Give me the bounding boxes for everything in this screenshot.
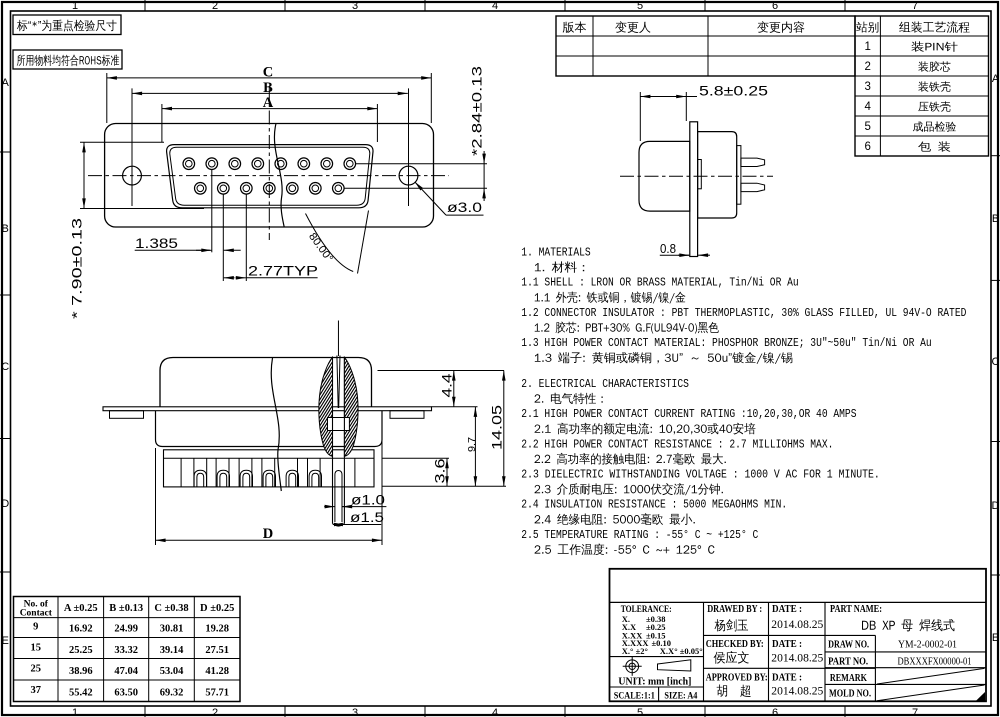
svg-text:DRAW NO.: DRAW NO.	[828, 639, 869, 650]
svg-text:C: C	[992, 356, 1000, 368]
svg-text:25.25: 25.25	[69, 645, 93, 656]
svg-text:D: D	[1, 498, 9, 510]
svg-text:DBXXXFX00000-01: DBXXXFX00000-01	[898, 655, 972, 667]
svg-text:5: 5	[637, 0, 643, 12]
svg-text:YM-2-0002-01: YM-2-0002-01	[898, 638, 957, 650]
svg-text:19.28: 19.28	[205, 624, 229, 635]
svg-text:63.50: 63.50	[114, 688, 138, 699]
svg-text:2: 2	[212, 0, 218, 12]
svg-text:* 7.90±0.13: * 7.90±0.13	[70, 218, 85, 319]
svg-text:24.99: 24.99	[114, 624, 138, 635]
svg-text:47.04: 47.04	[114, 666, 138, 677]
svg-text:D: D	[263, 526, 273, 542]
svg-text:5: 5	[637, 707, 643, 717]
svg-text:E: E	[2, 635, 9, 647]
svg-text:2.4 INSULATION RESISTANCE : 50: 2.4 INSULATION RESISTANCE : 5000 MEGAOHM…	[521, 498, 787, 512]
svg-text:6: 6	[772, 0, 778, 12]
svg-text:25: 25	[31, 664, 42, 675]
svg-text:X.X° ±0.05°: X.X° ±0.05°	[660, 646, 703, 656]
svg-text:15: 15	[31, 643, 42, 654]
svg-text:C: C	[263, 64, 273, 80]
svg-text:MOLD NO.: MOLD NO.	[829, 688, 871, 699]
svg-text:1.1 SHELL : LRON OR BRASS MATE: 1.1 SHELL : LRON OR BRASS MATERIAL, Tin/…	[521, 276, 798, 290]
svg-text:0.8: 0.8	[660, 241, 676, 256]
svg-text:30.81: 30.81	[160, 624, 184, 635]
svg-text:CHECKED BY:: CHECKED BY:	[706, 639, 764, 650]
svg-text:SCALE:1:1: SCALE:1:1	[614, 691, 655, 701]
svg-text:1. MATERIALS: 1. MATERIALS	[521, 246, 590, 260]
svg-text:B: B	[263, 80, 273, 96]
svg-text:UNIT: mm [inch]: UNIT: mm [inch]	[618, 676, 691, 687]
svg-text:DATE :: DATE :	[772, 604, 802, 615]
svg-text:C: C	[1, 361, 9, 373]
svg-text:B: B	[2, 223, 9, 235]
svg-text:C ±0.38: C ±0.38	[154, 603, 188, 614]
svg-text:69.32: 69.32	[160, 688, 184, 699]
svg-text:9.7: 9.7	[466, 437, 478, 452]
svg-text:DATE :: DATE :	[772, 672, 802, 683]
svg-text:1.385: 1.385	[135, 236, 178, 251]
svg-text:27.51: 27.51	[205, 645, 229, 656]
svg-text:D ±0.25: D ±0.25	[200, 603, 234, 614]
svg-text:53.04: 53.04	[160, 666, 184, 677]
svg-text:2.3 DIELECTRIC WITHSTANDING VO: 2.3 DIELECTRIC WITHSTANDING VOLTAGE : 10…	[521, 468, 879, 482]
svg-text:41.28: 41.28	[205, 666, 229, 677]
svg-text:1.3 HIGH POWER CONTACT MATERIA: 1.3 HIGH POWER CONTACT MATERIAL: PHOSPHO…	[521, 336, 931, 350]
svg-text:3.6: 3.6	[433, 459, 448, 484]
svg-text:2014.08.25: 2014.08.25	[771, 617, 823, 631]
svg-text:2.77TYP: 2.77TYP	[248, 263, 318, 278]
svg-text:*2.84±0.13: *2.84±0.13	[470, 66, 485, 156]
svg-text:55.42: 55.42	[69, 688, 93, 699]
svg-text:5: 5	[864, 121, 870, 133]
svg-text:SIZE: A4: SIZE: A4	[664, 691, 697, 701]
svg-text:ø1.0: ø1.0	[351, 492, 385, 507]
svg-text:3: 3	[864, 81, 870, 93]
svg-text:2.5 TEMPERATURE RATING : -55°: 2.5 TEMPERATURE RATING : -55° C ~ +125° …	[521, 528, 758, 542]
svg-text:16.92: 16.92	[69, 624, 93, 635]
svg-text:D: D	[992, 500, 1000, 512]
svg-text:2: 2	[212, 707, 218, 717]
svg-text:6: 6	[864, 141, 870, 153]
svg-text:REMARK: REMARK	[830, 673, 867, 684]
svg-text:2. ELECTRICAL CHARACTERISTICS: 2. ELECTRICAL CHARACTERISTICS	[521, 377, 689, 391]
svg-text:PART NAME:: PART NAME:	[830, 604, 882, 615]
svg-text:APPROVED BY:: APPROVED BY:	[706, 672, 768, 683]
svg-text:4.4: 4.4	[439, 373, 454, 398]
svg-text:9: 9	[33, 622, 38, 633]
svg-text:A: A	[2, 77, 10, 89]
svg-text:1: 1	[72, 0, 78, 12]
svg-text:X.° ±2°: X.° ±2°	[622, 646, 648, 656]
svg-text:3: 3	[352, 0, 358, 12]
svg-text:37: 37	[31, 685, 42, 696]
svg-text:A: A	[992, 73, 1000, 85]
svg-text:1.2 CONNECTOR INSULATOR : PBT: 1.2 CONNECTOR INSULATOR : PBT THERMOPLAS…	[521, 306, 966, 320]
svg-text:E: E	[992, 632, 999, 644]
svg-text:A ±0.25: A ±0.25	[64, 603, 98, 614]
svg-text:B: B	[992, 213, 999, 225]
svg-text:2014.08.25: 2014.08.25	[771, 683, 823, 697]
svg-text:2: 2	[864, 61, 870, 73]
svg-text:5.8±0.25: 5.8±0.25	[699, 83, 768, 98]
svg-text:4: 4	[492, 707, 498, 717]
svg-text:6: 6	[772, 707, 778, 717]
svg-text:2.1 HIGH POWER CONTACT CURRENT: 2.1 HIGH POWER CONTACT CURRENT RATING :1…	[521, 407, 856, 421]
svg-text:2014.08.25: 2014.08.25	[771, 650, 823, 664]
svg-text:2.2 HIGH POWER CONTACT RESISTA: 2.2 HIGH POWER CONTACT RESISTANCE : 2.7 …	[521, 437, 833, 451]
svg-text:B ±0.13: B ±0.13	[109, 603, 143, 614]
svg-text:ø3.0: ø3.0	[447, 200, 482, 215]
svg-text:39.14: 39.14	[160, 645, 184, 656]
svg-text:57.71: 57.71	[205, 688, 229, 699]
svg-text:38.96: 38.96	[69, 666, 93, 677]
svg-text:4: 4	[492, 0, 498, 12]
svg-text:A: A	[263, 95, 274, 111]
svg-text:1: 1	[864, 41, 870, 53]
svg-text:4: 4	[864, 101, 871, 113]
svg-text:PART NO.: PART NO.	[828, 656, 868, 667]
svg-text:DATE :: DATE :	[772, 639, 802, 650]
svg-text:3: 3	[352, 707, 358, 717]
svg-text:7: 7	[912, 707, 918, 717]
svg-text:33.32: 33.32	[114, 645, 138, 656]
svg-text:Contact: Contact	[20, 609, 53, 619]
svg-text:14.05: 14.05	[489, 405, 504, 450]
svg-text:1: 1	[72, 707, 78, 717]
svg-text:7: 7	[912, 0, 918, 12]
svg-text:DRAWED BY :: DRAWED BY :	[707, 604, 762, 615]
svg-text:ø1.5: ø1.5	[350, 510, 384, 525]
